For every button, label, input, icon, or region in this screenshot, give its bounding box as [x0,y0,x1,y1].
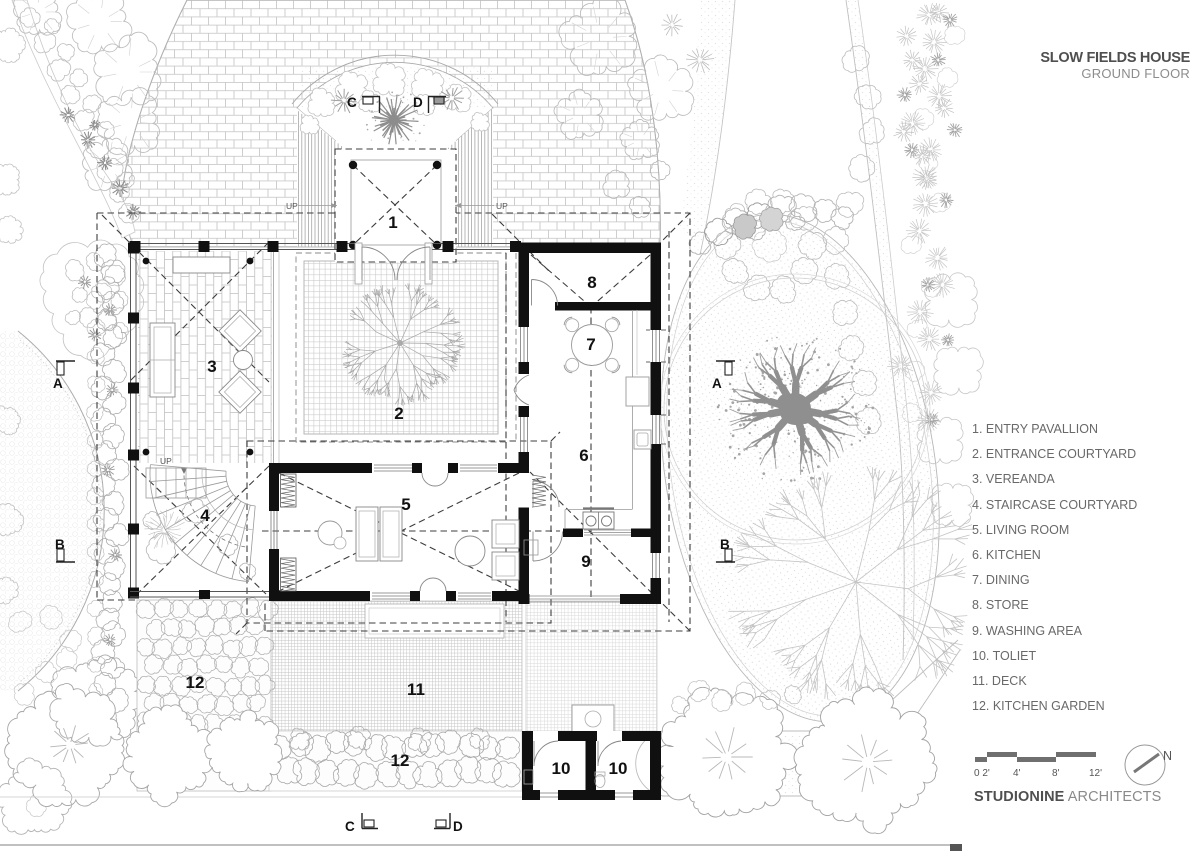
svg-text:UP: UP [160,456,172,466]
svg-text:1. ENTRY PAVALLION: 1. ENTRY PAVALLION [972,422,1098,436]
svg-text:7: 7 [586,335,595,354]
svg-text:12: 12 [391,751,410,770]
svg-text:10: 10 [552,759,571,778]
svg-text:UP: UP [496,201,508,211]
svg-text:STUDIONINE ARCHITECTS: STUDIONINE ARCHITECTS [974,789,1161,805]
svg-text:SLOW FIELDS HOUSE: SLOW FIELDS HOUSE [1040,50,1190,66]
svg-text:5. LIVING ROOM: 5. LIVING ROOM [972,523,1069,537]
svg-text:D: D [453,819,463,834]
svg-text:5: 5 [401,495,410,514]
svg-text:4. STAIRCASE COURTYARD: 4. STAIRCASE COURTYARD [972,498,1137,512]
svg-text:2: 2 [394,404,403,423]
svg-text:UP: UP [286,201,298,211]
svg-text:9: 9 [581,552,590,571]
svg-text:C: C [347,95,357,110]
svg-text:9. WASHING AREA: 9. WASHING AREA [972,624,1083,638]
svg-text:0 2': 0 2' [974,768,990,779]
svg-text:N: N [1163,749,1172,763]
svg-text:11. DECK: 11. DECK [972,674,1027,688]
svg-text:3: 3 [207,357,216,376]
svg-text:8. STORE: 8. STORE [972,598,1029,612]
svg-text:GROUND FLOOR: GROUND FLOOR [1081,66,1190,81]
svg-text:12: 12 [186,673,205,692]
svg-text:1: 1 [388,213,397,232]
svg-text:C: C [345,819,355,834]
svg-text:8': 8' [1052,768,1060,779]
svg-text:3. VEREANDA: 3. VEREANDA [972,472,1055,486]
svg-text:4': 4' [1013,768,1021,779]
svg-text:6. KITCHEN: 6. KITCHEN [972,548,1041,562]
svg-text:10: 10 [609,759,628,778]
svg-text:12. KITCHEN GARDEN: 12. KITCHEN GARDEN [972,699,1105,713]
svg-text:4: 4 [200,506,210,525]
svg-text:6: 6 [579,446,588,465]
svg-text:7. DINING: 7. DINING [972,573,1030,587]
svg-text:8: 8 [587,273,596,292]
svg-text:D: D [413,95,423,110]
svg-text:10. TOLIET: 10. TOLIET [972,649,1037,663]
svg-text:A: A [712,376,722,391]
svg-text:12': 12' [1089,768,1102,779]
svg-text:A: A [53,376,63,391]
svg-text:11: 11 [407,680,425,699]
svg-text:2. ENTRANCE COURTYARD: 2. ENTRANCE COURTYARD [972,447,1136,461]
